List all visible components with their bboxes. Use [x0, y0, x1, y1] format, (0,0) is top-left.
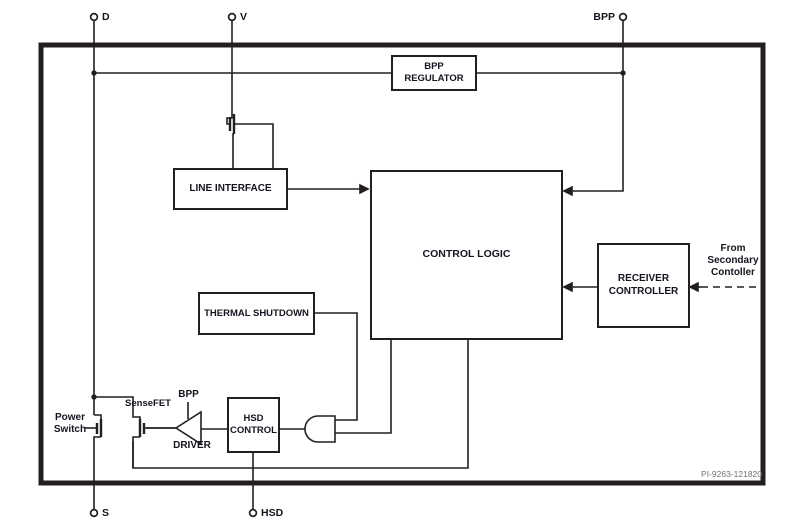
receiver-controller-block: RECEIVER CONTROLLER [597, 243, 690, 328]
junction-dot [91, 70, 96, 75]
bpp-regulator-block: BPP REGULATOR [391, 55, 477, 91]
junction-dot [620, 70, 625, 75]
control-logic-block: CONTROL LOGIC [370, 170, 563, 340]
secondary-arrowhead [690, 283, 698, 291]
pin-label-v: V [240, 11, 247, 24]
pin-label-hsd: HSD [261, 507, 283, 520]
pin-label-s: S [102, 507, 109, 520]
junction-dot [91, 394, 96, 399]
powerfet-source-jog [94, 437, 101, 441]
thermal-wire [315, 313, 357, 420]
receiver-arrowhead [564, 283, 572, 291]
pin-terminal-v [229, 14, 236, 21]
and-gate [305, 416, 335, 442]
from-secondary-label: From Secondary Contoller [696, 243, 770, 279]
pin-terminal-d [91, 14, 98, 21]
line-interface-block: LINE INTERFACE [173, 168, 288, 210]
hsd-control-block: HSD CONTROL [227, 397, 280, 453]
sensefet-source-wire [133, 437, 140, 468]
block-diagram: BPP REGULATOR LINE INTERFACE CONTROL LOG… [0, 0, 810, 529]
pin-terminal-hsd [250, 510, 257, 517]
pin-terminal-bpp [620, 14, 627, 21]
pin-label-d: D [102, 11, 110, 24]
control-to-and-wire [335, 340, 391, 433]
sensefet-label: SenseFET [119, 398, 177, 409]
driver-label: DRIVER [168, 440, 216, 452]
pin-label-bpp: BPP [588, 11, 615, 24]
line-interface-fet-drain-wire [234, 124, 273, 168]
bpp-arrowhead [564, 187, 572, 195]
thermal-shutdown-block: THERMAL SHUTDOWN [198, 292, 315, 335]
part-code: PI-9263-121820 [662, 469, 762, 479]
driver-bpp-label: BPP [174, 389, 203, 401]
line-interface-fet-source-wire [233, 134, 234, 168]
pin-terminal-s [91, 510, 98, 517]
line-interface-arrowhead [360, 185, 368, 193]
power-switch-label: Power Switch [44, 412, 96, 436]
